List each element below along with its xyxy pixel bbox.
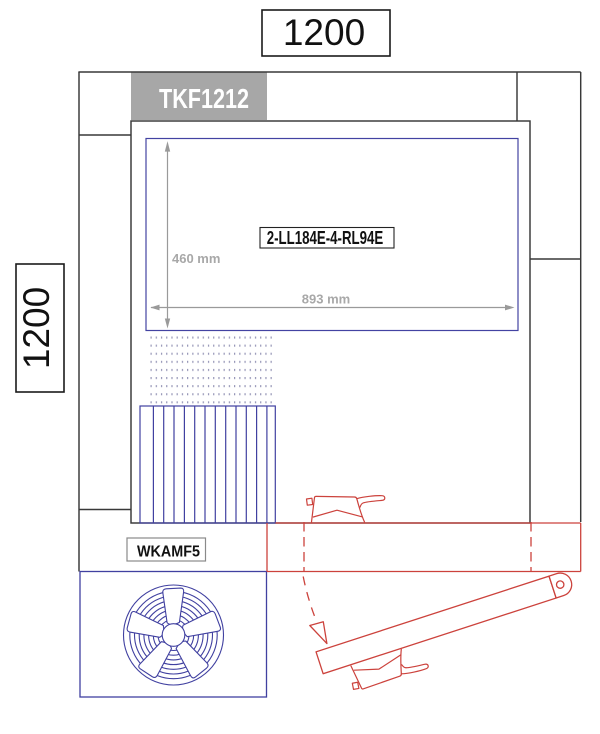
svg-text:1200: 1200	[283, 12, 365, 53]
svg-text:460 mm: 460 mm	[172, 251, 220, 266]
svg-text:TKF1212: TKF1212	[159, 83, 249, 114]
svg-text:2-LL184E-4-RL94E: 2-LL184E-4-RL94E	[267, 228, 384, 248]
svg-text:WKAMF5: WKAMF5	[137, 544, 200, 561]
svg-text:1200: 1200	[16, 287, 57, 369]
svg-text:893 mm: 893 mm	[302, 292, 350, 307]
